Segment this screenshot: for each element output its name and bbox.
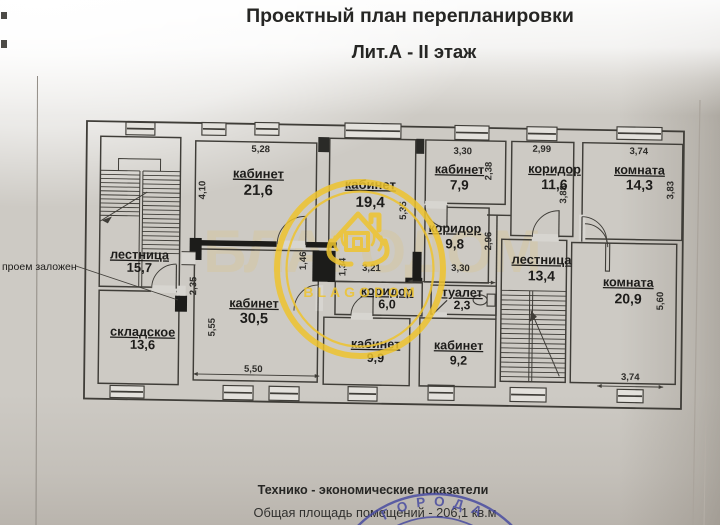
svg-text:2,35: 2,35	[188, 276, 199, 295]
svg-text:5,50: 5,50	[244, 364, 263, 375]
svg-text:9,2: 9,2	[450, 353, 468, 367]
svg-text:3,30: 3,30	[453, 146, 472, 157]
svg-text:проем заложен: проем заложен	[2, 261, 77, 273]
svg-text:21,6: 21,6	[244, 182, 273, 200]
svg-text:30,5: 30,5	[240, 311, 268, 327]
svg-text:13,6: 13,6	[130, 337, 155, 352]
svg-text:кабинет: кабинет	[435, 162, 485, 177]
svg-text:кабинет: кабинет	[233, 166, 284, 182]
svg-text:15,7: 15,7	[127, 260, 152, 275]
svg-text:3,30: 3,30	[451, 263, 470, 274]
svg-text:14,3: 14,3	[626, 176, 654, 192]
svg-text:комната: комната	[614, 163, 666, 178]
svg-text:20,9: 20,9	[614, 290, 642, 306]
svg-text:коридор: коридор	[528, 162, 581, 177]
svg-text:1,46: 1,46	[298, 251, 309, 270]
svg-text:3,74: 3,74	[629, 146, 648, 157]
svg-text:5,60: 5,60	[655, 292, 666, 311]
svg-text:Лит.А - II этаж: Лит.А - II этаж	[352, 41, 477, 62]
svg-text:11,6: 11,6	[541, 176, 568, 192]
svg-text:3,83: 3,83	[665, 181, 676, 200]
svg-text:19,4: 19,4	[355, 194, 385, 212]
svg-text:13,4: 13,4	[528, 267, 556, 283]
svg-text:3,74: 3,74	[621, 372, 640, 383]
svg-text:2,3: 2,3	[454, 298, 471, 312]
svg-text:Проектный план перепланировки: Проектный план перепланировки	[246, 5, 574, 27]
svg-text:4,10: 4,10	[197, 181, 208, 200]
svg-text:лестница: лестница	[512, 251, 573, 267]
svg-text:9,8: 9,8	[445, 236, 464, 251]
svg-text:BLAGODOM: BLAGODOM	[303, 284, 418, 300]
svg-text:5,28: 5,28	[251, 144, 270, 155]
svg-text:5,55: 5,55	[207, 317, 218, 336]
svg-text:кабинет: кабинет	[229, 296, 279, 311]
svg-text:2,99: 2,99	[532, 144, 551, 155]
svg-text:кабинет: кабинет	[434, 338, 484, 353]
svg-text:комната: комната	[603, 275, 655, 290]
svg-text:2,96: 2,96	[483, 232, 494, 251]
svg-text:2,38: 2,38	[483, 162, 494, 181]
svg-text:7,9: 7,9	[450, 177, 469, 192]
